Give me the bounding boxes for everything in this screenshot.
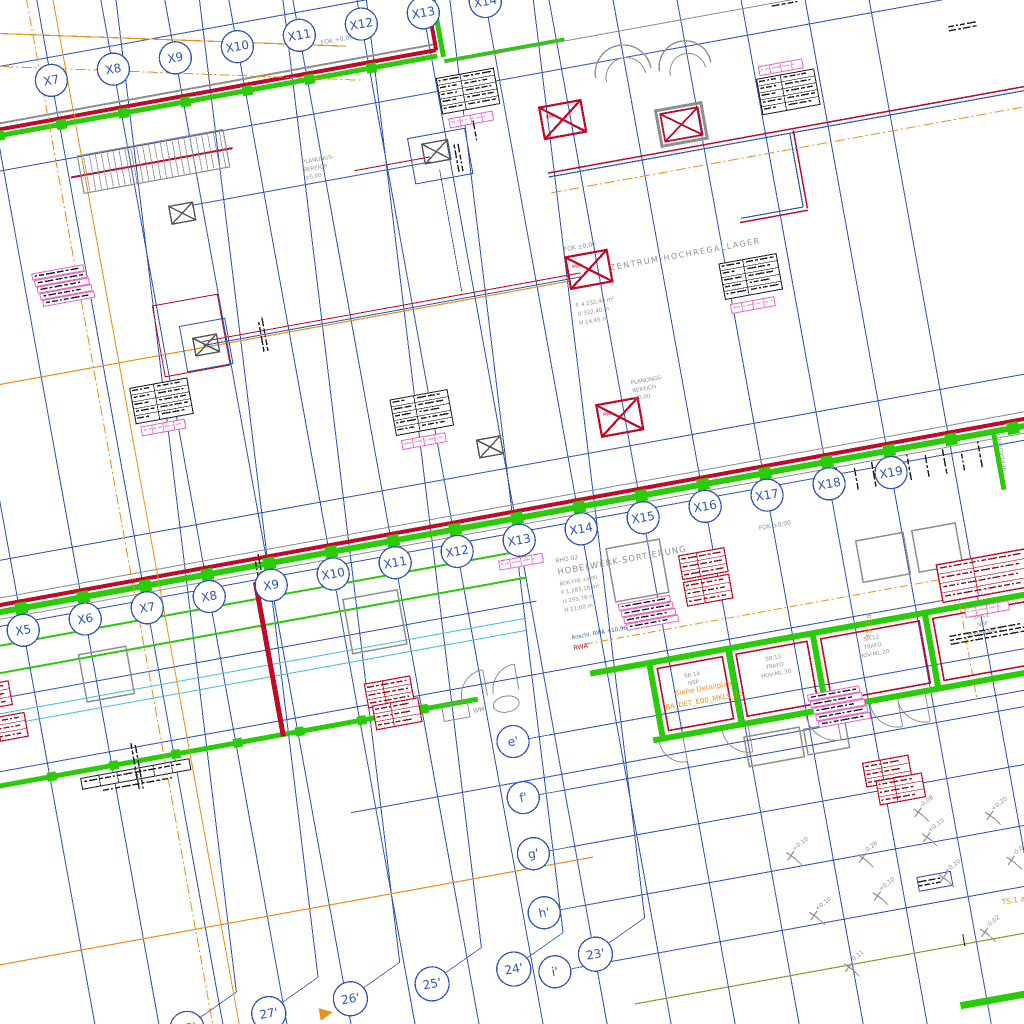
wall-pillar [357,715,367,725]
wall-pillar [56,119,68,131]
plan-text: X7 [42,72,60,89]
wall-pillar [758,466,772,480]
wall-pillar [200,568,214,582]
wall-pillar [324,545,338,559]
wall-pillar [76,590,90,604]
plan-text: X8 [104,61,122,78]
plan-text: X7 [138,599,156,616]
wall-pillar [171,749,181,759]
wall-pillar [233,738,243,748]
wall-pillar [180,96,192,108]
plan-viewport: SR.14NSPSR.13TRAFOHOV-ML 30SR.12TRAFOHOV… [0,0,1024,1024]
wall-pillar [882,444,896,458]
plan-text: X9 [166,50,184,67]
annotation-text: TS.2 a [864,614,873,639]
wall-pillar [696,477,710,491]
plan-text: X6 [76,611,94,628]
wall-pillar [138,579,152,593]
wall-pillar [1006,421,1020,435]
plan-text: X5 [14,622,32,639]
wall-pillar [944,432,958,446]
wall-pillar [386,534,400,548]
wall-pillar [109,760,119,770]
wall-pillar [510,511,524,525]
plan-text: X8 [200,588,218,605]
wall-pillar [572,500,586,514]
floor-plan-canvas[interactable]: SR.14NSPSR.13TRAFOHOV-ML 30SR.12TRAFOHOV… [0,0,1024,1024]
wall-pillar [47,771,57,781]
wall-pillar [304,73,316,85]
wall-pillar [448,522,462,536]
wall-pillar [366,62,378,74]
wall-pillar [634,489,648,503]
wall-pillar [242,85,254,97]
wall-pillar [14,601,28,615]
wall-pillar [118,107,130,119]
plan-text: X9 [262,577,280,594]
wall-pillar [295,726,305,736]
wall-pillar [262,556,276,570]
wall-pillar [820,455,834,469]
